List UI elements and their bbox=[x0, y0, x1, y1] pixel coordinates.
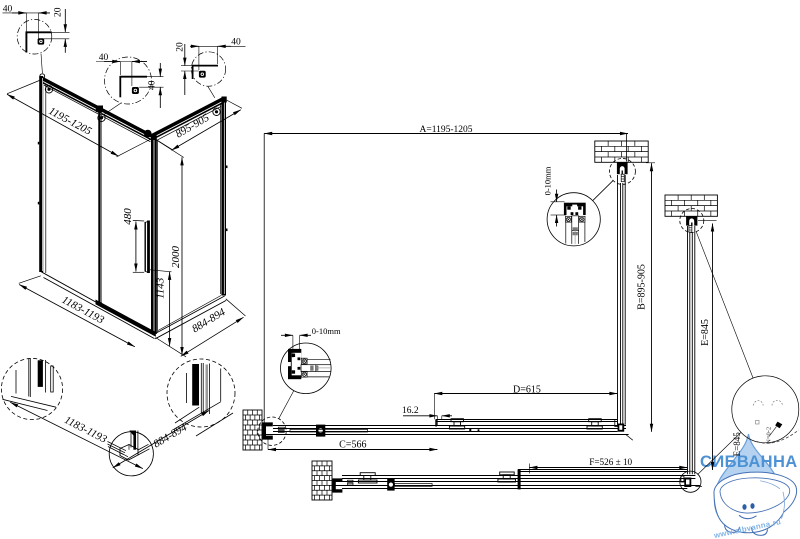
svg-text:20: 20 bbox=[53, 7, 63, 17]
svg-text:40: 40 bbox=[3, 4, 13, 14]
svg-text:F=526 ± 10: F=526 ± 10 bbox=[589, 457, 632, 467]
svg-text:40: 40 bbox=[148, 80, 158, 90]
svg-text:E=845: E=845 bbox=[732, 432, 742, 457]
svg-text:20: 20 bbox=[175, 42, 185, 52]
svg-text:E=845: E=845 bbox=[700, 319, 711, 346]
svg-text:A=1195-1205: A=1195-1205 bbox=[420, 125, 473, 135]
svg-text:2000: 2000 bbox=[170, 246, 182, 269]
svg-text:D=615: D=615 bbox=[513, 385, 541, 396]
svg-text:40: 40 bbox=[231, 38, 241, 48]
svg-text:40: 40 bbox=[99, 53, 109, 63]
svg-text:0-10mm: 0-10mm bbox=[543, 166, 553, 195]
svg-text:0-10mm: 0-10mm bbox=[312, 326, 341, 336]
svg-text:16.2: 16.2 bbox=[402, 406, 419, 416]
svg-text:N=0-2: N=0-2 bbox=[765, 427, 772, 444]
svg-text:B=895-905: B=895-905 bbox=[636, 264, 647, 310]
svg-text:СИБВАННА: СИБВАННА bbox=[700, 453, 798, 471]
svg-text:C=566: C=566 bbox=[339, 440, 366, 451]
svg-text:480: 480 bbox=[122, 208, 134, 225]
svg-text:1143: 1143 bbox=[155, 277, 167, 299]
